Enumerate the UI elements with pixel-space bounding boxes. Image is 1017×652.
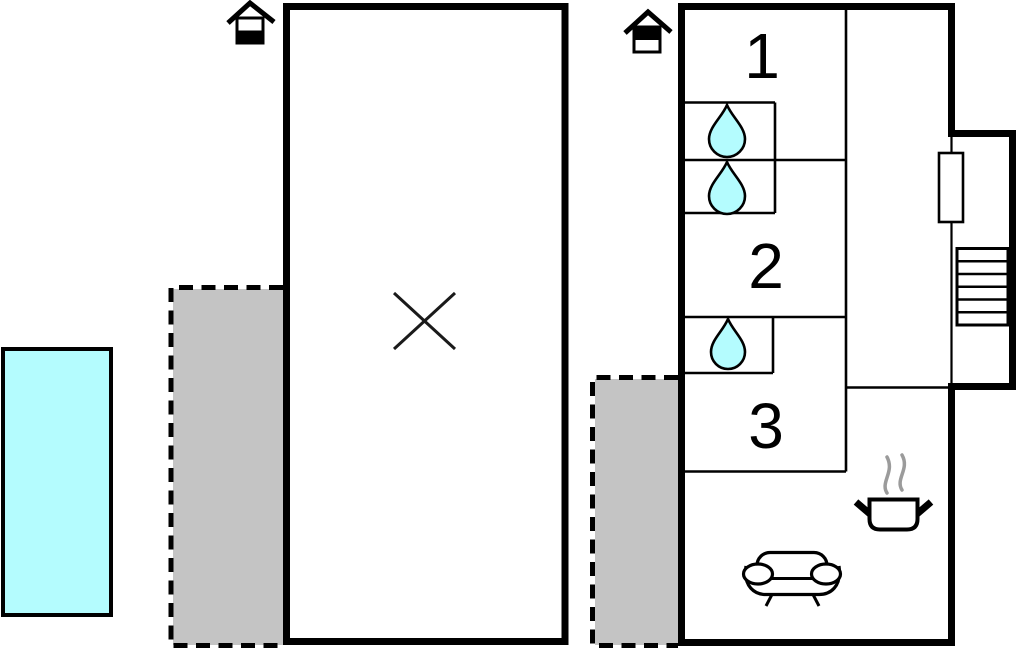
floor-plan-canvas: 1 2 3 [0,0,1017,652]
pot-body [870,500,918,530]
sofa-armrest-right [812,564,841,584]
stairs-icon [957,249,1008,326]
room-2-label: 2 [748,230,784,302]
floor-plan: 1 2 3 [0,0,1017,652]
pool [3,349,111,615]
door-icon [939,153,963,222]
terrace-right-fill [595,379,678,645]
floor-level-house-icon-annex [228,3,274,43]
floor-level-house-icon-main [625,12,671,52]
terrace-left [171,288,283,646]
terrace-left-fill [173,289,283,645]
room-1-label: 1 [744,20,780,92]
terrace-right [593,378,679,646]
room-3-label: 3 [748,390,784,462]
sofa-armrest-left [744,564,773,584]
house-icon-upper-floor-fill [634,27,660,40]
house-icon-lower-floor-fill [237,31,263,44]
